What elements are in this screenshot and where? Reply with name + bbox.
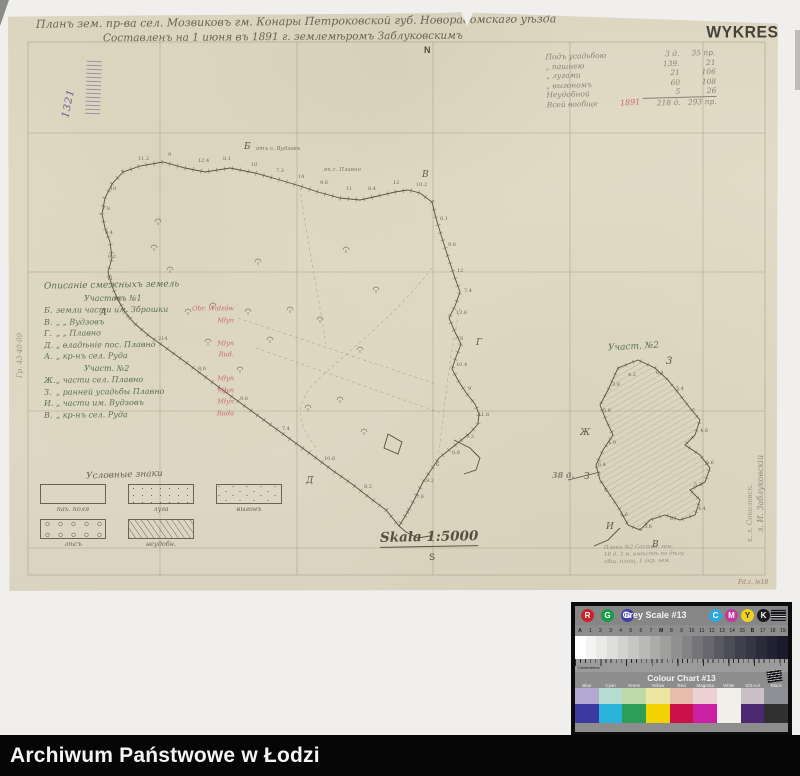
grey-step <box>756 636 767 659</box>
legend-swatch-plain <box>40 484 106 504</box>
parcel-2-area-note: 38 д. <box>552 470 574 480</box>
grey-scale-tick: 13 <box>717 628 727 634</box>
grey-step <box>618 636 629 659</box>
legend-swatch-dots <box>128 484 194 504</box>
legend-item: неудобн. <box>128 519 194 548</box>
adjacent-lands-row: А.„ кр-нъ сел. РудаRud. <box>44 349 234 362</box>
boundary-measure-number: 14 <box>298 174 304 180</box>
grey-scale-tick: 8 <box>666 628 676 634</box>
boundary-measure-number: 4.2 <box>628 372 636 378</box>
boundary-measure-number: 5.6 <box>603 408 611 414</box>
adjacent-lands-row: Б.земли части им. ЗброшкиObr. Widzów <box>44 303 234 316</box>
grey-scale-tick-row: A1234567M89101112131415B171819 <box>575 625 788 636</box>
grey-step <box>639 636 650 659</box>
grey-scale-tick: B <box>747 628 757 634</box>
boundary-measure-number: 6.6 <box>706 460 714 466</box>
target-barcode-icon <box>771 609 786 621</box>
colour-patch-label: Yellow <box>646 683 670 688</box>
legend-item: луга <box>128 484 194 513</box>
grey-scale-tick: 4 <box>616 628 626 634</box>
legend-item: пах. поля <box>40 484 106 513</box>
boundary-measure-number: 6 <box>436 462 439 468</box>
left-margin-note: Гр. 43-40-09 <box>16 333 24 378</box>
boundary-measure-number: 10 <box>251 162 257 168</box>
grey-scale-tick: 2 <box>595 628 605 634</box>
grey-scale-tick: A <box>575 628 585 634</box>
colour-patch-label: Blue <box>575 683 599 688</box>
adjacent-lands-row: Ж.„ части сел. ПлавноMłyn <box>44 373 234 386</box>
boundary-measure-number: 8.1 <box>223 156 231 162</box>
boundary-measure-number: 11.2 <box>138 156 149 162</box>
archive-caption-text: Archiwum Państwowe w Łodzi <box>10 744 320 768</box>
boundary-measure-number: 5.8 <box>644 524 652 530</box>
legend-label: выгонъ <box>216 505 282 513</box>
boundary-letter: В <box>422 170 429 180</box>
tree-symbol <box>267 337 273 343</box>
colour-patch-dark <box>646 704 670 723</box>
ruler-word: Centimetres <box>578 665 600 670</box>
boundary-measure-number: 8.6 <box>198 366 206 372</box>
adjacent-lands-row: В.„ кр-нъ сел. РудаRuda <box>44 408 234 421</box>
grey-scale-tick: 12 <box>707 628 717 634</box>
colour-patches-light <box>575 688 788 704</box>
boundary-letter: Г <box>476 338 482 348</box>
colour-patch-light <box>646 688 670 704</box>
grey-step <box>777 636 788 659</box>
surveyor-signature-2: к. з. Соколовск. <box>746 442 754 542</box>
colour-patch-label: White <box>717 683 741 688</box>
boundary-letter: И <box>606 522 614 532</box>
grey-scale-tick: 11 <box>697 628 707 634</box>
adjacent-lands-rows-2: Ж.„ части сел. ПлавноMłynЗ.„ ранней усад… <box>44 374 234 420</box>
scan-edge-shadow <box>795 30 800 90</box>
boundary-measure-number: 5 <box>604 488 607 494</box>
colour-patch-label: Magenta <box>693 683 717 688</box>
boundary-measure-number: 9 <box>126 314 129 320</box>
grey-step <box>682 636 693 659</box>
boundary-measure-number: 6.8 <box>114 296 122 302</box>
grey-step <box>607 636 618 659</box>
colour-chart-title: Colour Chart #13 <box>575 673 788 683</box>
boundary-measure-number: 8.2 <box>364 484 372 490</box>
scale-label: Skala 1:5000 <box>380 528 479 548</box>
grey-scale-tick: 3 <box>605 628 615 634</box>
legend-label: луга <box>128 505 194 513</box>
tree-symbol <box>245 309 251 315</box>
legend-item: лѣсъ <box>40 519 106 548</box>
colour-patch-dark <box>717 704 741 723</box>
colour-patch-dark <box>741 704 765 723</box>
boundary-measure-number: 9 <box>468 386 471 392</box>
colour-patch-dark <box>622 704 646 723</box>
boundary-measure-number: 12.4 <box>198 158 209 164</box>
grey-step <box>692 636 703 659</box>
grey-scale-steps <box>575 636 788 659</box>
legend-swatch-marks <box>216 484 282 504</box>
boundary-place-label: въ с. Плавно <box>324 167 361 173</box>
grey-scale-tick: 7 <box>646 628 656 634</box>
grey-scale-tick: 6 <box>636 628 646 634</box>
boundary-measure-number: 7.3 <box>276 168 284 174</box>
adjacent-lands-row: Г.„ „ Плавно <box>44 326 234 339</box>
target-circle-Y: Y <box>741 609 754 622</box>
grey-scale-tick: 15 <box>737 628 747 634</box>
colour-patch-dark <box>599 704 623 723</box>
grey-step <box>671 636 682 659</box>
boundary-measure-number: 9.6 <box>320 180 328 186</box>
colour-patch-light <box>670 688 694 704</box>
grey-scale-header: RGB Grey Scale #13 CMYK <box>575 606 788 625</box>
grey-scale-tick: 1 <box>585 628 595 634</box>
legend-row-2: лѣсънеудобн. <box>40 519 290 548</box>
map-legend: Условные знаки пах. полялугавыгонъ лѣсън… <box>40 468 290 548</box>
area-table-red-note: 1891 <box>620 97 641 107</box>
tree-symbol <box>357 347 363 353</box>
colour-patch-light <box>764 688 788 704</box>
colour-patch-light <box>575 688 599 704</box>
archive-caption-bar: Archiwum Państwowe w Łodzi <box>0 735 800 776</box>
boundary-measure-number: 9 <box>168 152 171 158</box>
boundary-letter: Ж <box>580 428 590 438</box>
boundary-measure-number: 12 <box>457 268 463 274</box>
boundary-measure-number: 9.8 <box>240 396 248 402</box>
boundary-measure-number: 11 <box>107 276 113 282</box>
boundary-measure-number: 7 <box>692 408 695 414</box>
colour-patch-light <box>717 688 741 704</box>
legend-row-1: пах. полялугавыгонъ <box>40 484 290 513</box>
boundary-measure-number: 5.2 <box>694 482 702 488</box>
tree-symbol <box>237 367 243 373</box>
map-title-line2: Составленъ на 1 июня въ 1891 г. землемѣр… <box>103 30 463 45</box>
boundary-measure-number: 12 <box>393 180 399 186</box>
boundary-measure-number: 6.4 <box>598 462 606 468</box>
tree-symbol <box>373 287 379 293</box>
archive-corner-note: Fd.z. №18 <box>738 579 768 586</box>
boundary-measure-number: 7.4 <box>282 426 290 432</box>
grey-scale-tick: 10 <box>687 628 697 634</box>
grey-step <box>735 636 746 659</box>
boundary-letter: Б <box>244 142 251 152</box>
target-circle-R: R <box>581 609 594 622</box>
grey-scale-tick: M <box>656 628 666 634</box>
legend-swatch-trees <box>40 519 106 539</box>
boundary-measure-number: 6 <box>670 516 673 522</box>
tree-symbol <box>305 405 311 411</box>
grey-step <box>586 636 597 659</box>
boundary-measure-number: 7.4 <box>464 288 472 294</box>
compass-north-label: N <box>424 45 431 55</box>
boundary-measure-number: 13.6 <box>456 310 467 316</box>
boundary-letter: З <box>584 472 590 482</box>
grey-step <box>714 636 725 659</box>
boundary-measure-number: 6.1 <box>440 216 448 222</box>
colour-patch-dark <box>764 704 788 723</box>
colour-patch-light <box>599 688 623 704</box>
boundary-measure-number: 3.8 <box>612 382 620 388</box>
legend-label: лѣсъ <box>40 540 106 548</box>
map-sheet: Планъ зем. пр-ва сел. Мозвиковъ гм. Кона… <box>8 12 778 592</box>
colour-patch-label: Cyan <box>599 683 623 688</box>
color-calibration-target: RGB Grey Scale #13 CMYK A1234567M8910111… <box>575 606 788 732</box>
boundary-measure-number: 4.8 <box>700 428 708 434</box>
grey-step <box>650 636 661 659</box>
boundary-measure-number: 10.4 <box>456 362 467 368</box>
boundary-measure-number: 7.6 <box>416 494 424 500</box>
compass-south-label: S <box>429 552 435 562</box>
legend-item: выгонъ <box>216 484 282 513</box>
grey-scale-tick: 14 <box>727 628 737 634</box>
boundary-measure-number: 4.9 <box>608 440 616 446</box>
tree-symbol <box>287 307 293 313</box>
boundary-measure-number: 10.2 <box>416 182 427 188</box>
boundary-measure-number: 11 <box>346 186 352 192</box>
colour-patches-dark <box>575 704 788 723</box>
tree-symbol <box>361 429 367 435</box>
boundary-measure-number: 8 <box>460 336 463 342</box>
colour-chart-header: Colour Chart #13 BlueCyanGreenYellowRedM… <box>575 672 788 688</box>
colour-patch-label: Red <box>670 683 694 688</box>
boundary-measure-number: 11.8 <box>478 412 489 418</box>
parcel-2-boundary <box>568 360 710 546</box>
tree-symbol <box>151 245 157 251</box>
boundary-measure-number: 4.4 <box>698 506 706 512</box>
adjacent-lands-heading: Описаніе смежныхъ земель <box>44 278 234 293</box>
colour-patch-dark <box>670 704 694 723</box>
colour-patch-light <box>741 688 765 704</box>
legend-label: неудобн. <box>128 540 194 548</box>
colour-patch-label: Green <box>622 683 646 688</box>
boundary-letter: Д <box>306 476 313 486</box>
grey-step <box>596 636 607 659</box>
legend-swatch-hatch <box>128 519 194 539</box>
grey-scale-tick: 18 <box>768 628 778 634</box>
target-circle-C: C <box>709 609 722 622</box>
grey-scale-tick: 17 <box>758 628 768 634</box>
boundary-measure-number: 6.1 <box>656 370 664 376</box>
boundary-letter: В <box>652 540 659 550</box>
colour-patch-labels: BlueCyanGreenYellowRedMagentaWhiteS/S-co… <box>575 683 788 688</box>
ruler-strip: Centimetres <box>575 659 788 672</box>
surveyor-signature: з. И. Заблуковскій <box>756 412 765 532</box>
adjacent-lands-section-1: Участокъ №1 <box>84 293 234 305</box>
grey-step <box>660 636 671 659</box>
colour-patch-dark <box>693 704 717 723</box>
grey-step <box>724 636 735 659</box>
adjacent-lands-section-2: Участ. №2 <box>84 363 234 375</box>
boundary-measure-number: 9.8 <box>448 242 456 248</box>
colour-patch-light <box>622 688 646 704</box>
tree-symbol <box>255 259 261 265</box>
bottom-pencil-note: Планъ №2 Состав. зем.18 д. 3 м. вмѣстѣ п… <box>604 543 724 566</box>
parcel-1-subdivisions <box>238 188 460 452</box>
boundary-letter: А <box>100 308 107 318</box>
boundary-measure-number: 8.2 <box>108 254 116 260</box>
target-barcode-icon-2 <box>766 669 783 683</box>
grey-scale-tick: 19 <box>778 628 788 634</box>
colour-patch-label: S/S-col <box>741 683 765 688</box>
target-circle-M: M <box>725 609 738 622</box>
boundary-measure-number: 7.8 <box>102 206 110 212</box>
boundary-place-label: отъ с. Вудзовъ <box>256 146 300 152</box>
boundary-measure-number: 9.4 <box>105 230 113 236</box>
boundary-measure-number: 4.6 <box>620 512 628 518</box>
boundary-measure-number: 8.8 <box>452 450 460 456</box>
tree-symbol <box>343 247 349 253</box>
parcel-2-corner-number: 3 <box>666 356 672 367</box>
colour-patch-light <box>693 688 717 704</box>
grey-scale-tick: 5 <box>626 628 636 634</box>
grey-step <box>767 636 778 659</box>
grey-step <box>628 636 639 659</box>
archive-stamp <box>85 58 102 114</box>
grey-step <box>703 636 714 659</box>
boundary-measure-number: 9.2 <box>426 478 434 484</box>
boundary-measure-number: 214 <box>158 336 168 342</box>
grey-scale-title: Grey Scale #13 <box>611 610 698 620</box>
adjacent-lands-rows-1: Б.земли части им. ЗброшкиObr. WidzówВ.„ … <box>44 304 234 362</box>
target-circle-K: K <box>757 609 770 622</box>
grey-step <box>575 636 586 659</box>
adjacent-lands-row: И.„ части им. ВудзовъMłyn <box>44 396 234 409</box>
legend-label: пах. поля <box>40 505 106 513</box>
adjacent-lands-list: Описаніе смежныхъ земель Участокъ №1 Б.з… <box>44 280 234 420</box>
tree-symbol <box>337 397 343 403</box>
boundary-measure-number: 10 <box>110 186 116 192</box>
wykres-stamp: WYKRES <box>706 23 778 42</box>
grey-scale-tick: 9 <box>676 628 686 634</box>
boundary-measure-number: 5.4 <box>676 386 684 392</box>
colour-patch-label: Black <box>764 683 788 688</box>
boundary-measure-number: 8.4 <box>368 186 376 192</box>
colour-patch-dark <box>575 704 599 723</box>
boundary-measure-number: 10.6 <box>324 456 335 462</box>
boundary-measure-number: 8 <box>406 510 409 516</box>
grey-step <box>746 636 757 659</box>
boundary-measure-number: 7.2 <box>466 434 474 440</box>
